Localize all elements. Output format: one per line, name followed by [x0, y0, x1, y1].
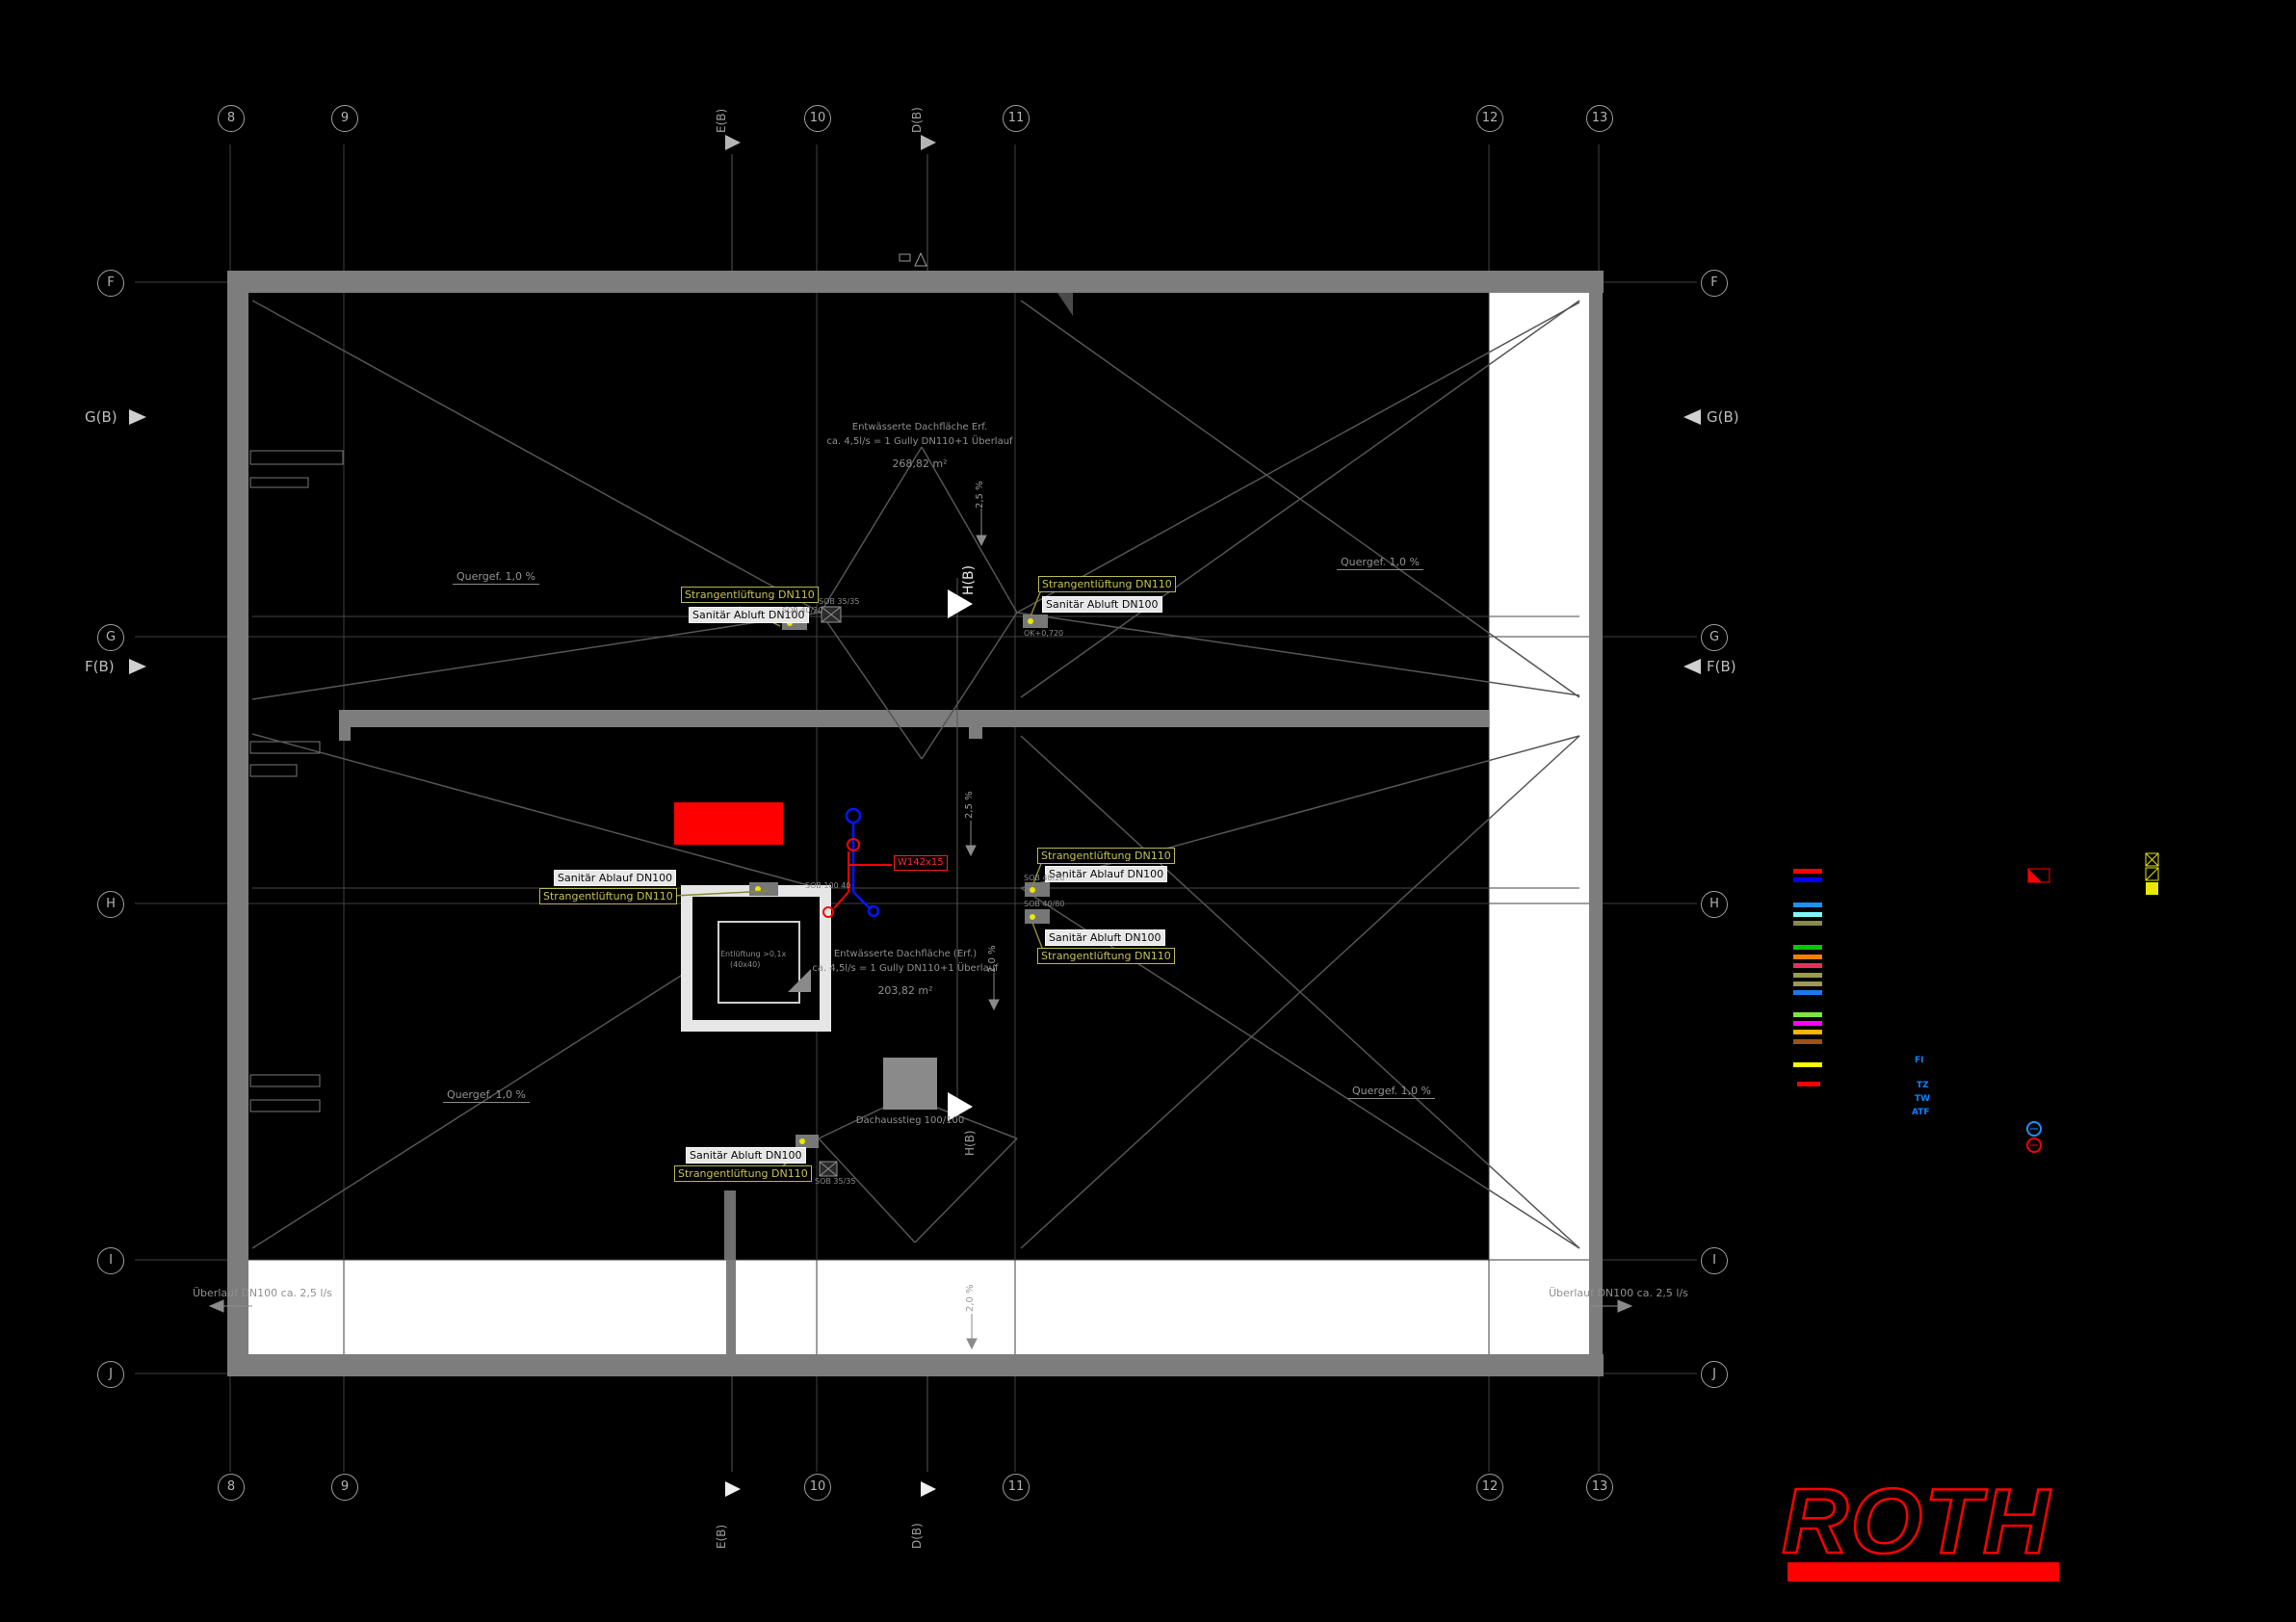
marker-eb-bottom: E(B)	[715, 1525, 728, 1549]
label-strang-h-lower: Strangentlüftung DN110	[1037, 948, 1175, 964]
plan-drawing: ROTH	[0, 0, 2296, 1622]
legend-bar	[1797, 1082, 1820, 1086]
annotation-line: Entwässerte Dachfläche Erf.	[775, 420, 1064, 434]
legend-bar	[1793, 869, 1822, 874]
legend-bar	[1793, 877, 1822, 882]
drain-code: SOB 35/35	[819, 597, 859, 606]
axis-col-10-top: 10	[804, 105, 831, 132]
marker-fb-right: F(B)	[1707, 658, 1736, 675]
axis-col-12-bottom: 12	[1476, 1474, 1503, 1501]
axis-col-9-bottom: 9	[331, 1474, 358, 1501]
label-strang-center: Strangentlüftung DN110	[539, 888, 677, 904]
axis-row-h-right: H	[1701, 891, 1728, 918]
label-strang-h-upper: Strangentlüftung DN110	[1037, 848, 1175, 864]
roof-area-annotation-top: Entwässerte Dachfläche Erf. ca. 4,5l/s =…	[775, 420, 1064, 471]
axis-row-f-right: F	[1701, 270, 1728, 297]
legend-label-tz: TZ	[1917, 1081, 1929, 1090]
legend-bar	[1793, 945, 1822, 950]
marker-fb-left: F(B)	[85, 658, 115, 675]
axis-row-f-left: F	[97, 270, 124, 297]
legend-bar	[1793, 981, 1822, 986]
legend-label-fi: FI	[1915, 1056, 1924, 1065]
axis-row-g-left: G	[97, 624, 124, 651]
slope-label-20-bottom: 2,0 %	[965, 1284, 976, 1312]
annotation-line: ca. 4,5l/s = 1 Gully DN110+1 Überlauf	[761, 961, 1050, 976]
roth-logo: ROTH	[1782, 1470, 2059, 1582]
cad-roof-plan: ROTH 8 9 10 11 12 13 8 9 10 11 12 13 F G…	[0, 0, 2296, 1622]
roth-logo-bar	[1787, 1562, 2059, 1582]
annotation-line: Entwässerte Dachfläche (Erf.)	[761, 947, 1050, 961]
label-abluft-bottom: Sanitär Abluft DN100	[686, 1147, 806, 1164]
marker-gb-left: G(B)	[85, 408, 117, 426]
marker-hb-bottom: H(B)	[963, 1130, 977, 1156]
ueberlauf-right: Überlauf DN100 ca. 2,5 l/s	[1549, 1287, 1688, 1299]
entlueftung-label-2: (40x40)	[730, 960, 760, 969]
label-strang-top-right: Strangentlüftung DN110	[1038, 576, 1176, 592]
slope-label-25-mid: 2,5 %	[964, 791, 975, 819]
axis-row-j-left: J	[97, 1361, 124, 1388]
legend-label-atf: ATF	[1912, 1108, 1930, 1117]
axis-row-h-left: H	[97, 891, 124, 918]
label-strang-bottom: Strangentlüftung DN110	[674, 1165, 812, 1182]
quergef-top-left: Quergef. 1,0 %	[453, 570, 539, 585]
pipe-size-tag: W142x15	[894, 855, 948, 871]
legend-bar	[1793, 912, 1822, 917]
drain-code: SOB 40/20	[1024, 874, 1064, 882]
annotation-area: 203,82 m²	[761, 983, 1050, 998]
marker-gb-right: G(B)	[1707, 408, 1739, 426]
legend-bar	[1793, 1039, 1822, 1044]
label-leaders	[674, 588, 1042, 1171]
quergef-top-right: Quergef. 1,0 %	[1337, 556, 1423, 570]
drain-code: SOB 40/20	[782, 606, 822, 615]
legend-bar	[1793, 973, 1822, 978]
marker-db-top: D(B)	[910, 107, 924, 133]
annotation-area: 268,82 m²	[775, 457, 1064, 471]
drain-code: OK+0,720	[1024, 629, 1063, 638]
legend-yellow-solid	[2146, 882, 2158, 895]
axis-col-8-bottom: 8	[218, 1474, 245, 1501]
dachausstieg-label: Dachausstieg 100/100	[852, 1115, 968, 1126]
quergef-bottom-left: Quergef. 1,0 %	[443, 1088, 530, 1103]
axis-col-11-top: 11	[1003, 105, 1030, 132]
legend-label-tw: TW	[1915, 1094, 1930, 1104]
legend-bar	[1793, 1030, 1822, 1034]
slope-label-25-top: 2,5 %	[975, 481, 985, 509]
drain-code: SOB 40/80	[1024, 900, 1064, 908]
legend-symbols	[2027, 853, 2158, 1152]
axis-col-13-top: 13	[1586, 105, 1613, 132]
quergef-bottom-right: Quergef. 1,0 %	[1348, 1085, 1435, 1099]
label-strang-top-center: Strangentlüftung DN110	[681, 587, 819, 603]
legend-bar	[1793, 990, 1822, 995]
marker-eb-top: E(B)	[715, 109, 728, 133]
marker-db-bottom: D(B)	[910, 1523, 924, 1549]
legend-bar	[1793, 963, 1822, 968]
legend-bar	[1793, 1021, 1822, 1026]
entlueftung-label-1: Entlüftung >0,1x	[720, 950, 786, 958]
axis-col-13-bottom: 13	[1586, 1474, 1613, 1501]
legend-bar	[1793, 955, 1822, 959]
axis-row-i-right: I	[1701, 1247, 1728, 1274]
legend-bar	[1793, 1062, 1822, 1067]
axis-col-9-top: 9	[331, 105, 358, 132]
slope-arrows	[210, 509, 1631, 1348]
axis-row-g-right: G	[1701, 624, 1728, 651]
label-abluft-h-lower: Sanitär Abluft DN100	[1045, 929, 1165, 946]
axis-row-i-left: I	[97, 1247, 124, 1274]
red-highlight-box	[674, 802, 783, 845]
label-ablauf-center: Sanitär Ablauf DN100	[554, 870, 676, 886]
marker-hb-top: H(B)	[961, 565, 977, 595]
label-abluft-top-right: Sanitär Abluft DN100	[1042, 596, 1162, 613]
ueberlauf-left: Überlauf DN100 ca. 2,5 l/s	[193, 1287, 332, 1299]
annotation-line: ca. 4,5l/s = 1 Gully DN110+1 Überlauf	[775, 434, 1064, 449]
axis-col-10-bottom: 10	[804, 1474, 831, 1501]
legend-bar	[1793, 1012, 1822, 1017]
drain-code: SOB 100 40	[805, 881, 850, 890]
axis-col-8-top: 8	[218, 105, 245, 132]
roof-area-annotation-mid: Entwässerte Dachfläche (Erf.) ca. 4,5l/s…	[761, 947, 1050, 998]
axis-col-12-top: 12	[1476, 105, 1503, 132]
roth-logo-text: ROTH	[1782, 1470, 2051, 1573]
roof-hatch	[883, 1058, 937, 1110]
legend-bar	[1793, 921, 1822, 926]
legend-bar	[1793, 903, 1822, 907]
drain-code: SOB 35/35	[815, 1177, 855, 1186]
axis-row-j-right: J	[1701, 1361, 1728, 1388]
axis-col-11-bottom: 11	[1003, 1474, 1030, 1501]
